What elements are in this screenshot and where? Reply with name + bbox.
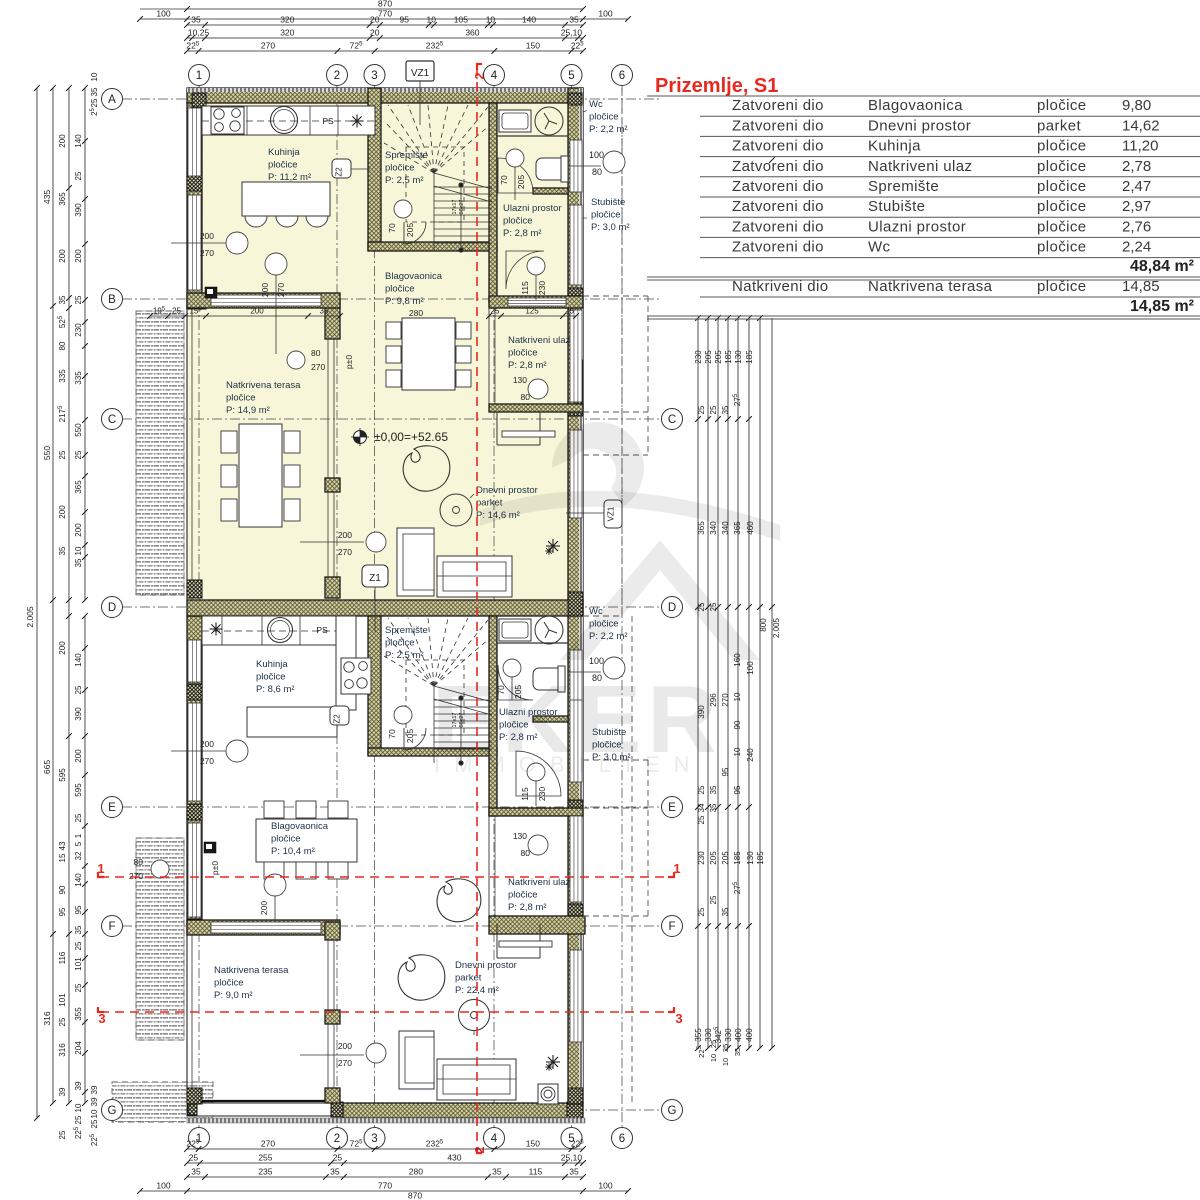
svg-text:Z2: Z2 (335, 167, 344, 177)
svg-text:100: 100 (598, 9, 612, 19)
svg-text:200: 200 (58, 505, 67, 519)
svg-text:pločice: pločice (1037, 239, 1087, 256)
svg-text:66x27: 66x27 (459, 200, 465, 215)
svg-text:32: 32 (74, 851, 83, 860)
svg-text:25: 25 (74, 813, 83, 822)
svg-text:200: 200 (338, 530, 352, 540)
svg-text:100: 100 (156, 9, 170, 19)
svg-text:pločice: pločice (1037, 218, 1087, 235)
svg-text:185: 185 (733, 851, 742, 865)
svg-text:316: 316 (42, 1011, 52, 1025)
svg-text:595: 595 (58, 768, 67, 782)
svg-text:G: G (108, 1105, 117, 1117)
svg-text:2: 2 (334, 70, 340, 82)
svg-text:25: 25 (58, 1017, 67, 1026)
svg-text:43: 43 (58, 841, 67, 850)
svg-text:25,10: 25,10 (561, 28, 583, 38)
svg-text:140: 140 (74, 653, 83, 667)
svg-text:400: 400 (745, 1028, 754, 1042)
svg-text:Zatvoreni dio: Zatvoreni dio (732, 97, 824, 114)
svg-text:5: 5 (74, 841, 83, 846)
svg-text:101: 101 (74, 957, 83, 971)
svg-text:25: 25 (709, 895, 718, 904)
svg-text:550: 550 (42, 446, 52, 460)
svg-text:100: 100 (746, 661, 755, 675)
svg-text:Zatvoreni dio: Zatvoreni dio (732, 178, 824, 195)
svg-text:2,78: 2,78 (1122, 158, 1151, 175)
svg-text:140: 140 (522, 15, 536, 25)
svg-text:390: 390 (74, 707, 83, 721)
svg-text:pločice: pločice (508, 348, 538, 359)
svg-text:130: 130 (734, 350, 743, 364)
svg-text:Z1: Z1 (369, 573, 381, 584)
svg-text:35: 35 (569, 15, 579, 25)
svg-text:280: 280 (409, 308, 423, 318)
svg-text:200: 200 (58, 134, 67, 148)
svg-text:115: 115 (520, 787, 530, 801)
svg-text:365: 365 (697, 521, 706, 535)
svg-text:10: 10 (74, 546, 83, 555)
svg-text:25: 25 (74, 685, 83, 694)
svg-text:25: 25 (172, 307, 181, 316)
svg-text:20: 20 (370, 15, 380, 25)
svg-text:3: 3 (98, 1011, 105, 1026)
svg-text:316: 316 (58, 1043, 67, 1057)
svg-text:25: 25 (74, 983, 83, 992)
svg-text:25: 25 (74, 171, 83, 180)
svg-text:C: C (668, 414, 676, 426)
svg-text:270: 270 (261, 41, 275, 51)
svg-text:235: 235 (258, 1167, 272, 1177)
svg-text:100: 100 (589, 656, 604, 666)
svg-text:PS: PS (322, 116, 334, 126)
svg-text:430: 430 (447, 1153, 461, 1163)
svg-text:pločice: pločice (1037, 198, 1087, 215)
svg-text:205: 205 (709, 851, 718, 865)
svg-text:270: 270 (261, 1139, 275, 1149)
svg-text:pločice: pločice (589, 112, 619, 123)
svg-text:25: 25 (709, 1040, 718, 1048)
svg-text:E: E (668, 802, 676, 814)
svg-text:200: 200 (250, 307, 264, 316)
svg-text:200: 200 (259, 901, 269, 915)
svg-text:34: 34 (697, 803, 706, 812)
svg-text:Wc: Wc (868, 239, 891, 256)
svg-text:10: 10 (709, 1054, 718, 1062)
svg-text:550: 550 (74, 423, 83, 437)
svg-text:Wc: Wc (589, 99, 603, 110)
svg-text:39: 39 (58, 1087, 67, 1096)
svg-text:70: 70 (499, 175, 509, 185)
svg-text:VZ1: VZ1 (411, 68, 430, 79)
svg-text:270: 270 (311, 362, 325, 372)
svg-text:pločice: pločice (1037, 138, 1087, 155)
svg-text:200: 200 (74, 523, 83, 537)
svg-text:204: 204 (74, 1041, 83, 1055)
svg-text:Natkrivena terasa: Natkrivena terasa (868, 278, 993, 295)
svg-text:4: 4 (491, 1133, 498, 1145)
svg-text:25: 25 (721, 1044, 730, 1052)
svg-text:pločice: pločice (268, 160, 298, 171)
svg-text:10: 10 (90, 72, 99, 81)
svg-text:VZ1: VZ1 (607, 506, 616, 521)
svg-text:335: 335 (58, 369, 67, 383)
svg-text:230: 230 (74, 323, 83, 337)
svg-text:80: 80 (58, 341, 67, 350)
svg-text:25: 25 (565, 307, 574, 316)
svg-text:P: 2,8 m²: P: 2,8 m² (508, 902, 547, 913)
svg-text:770: 770 (378, 1181, 392, 1191)
svg-text:25: 25 (697, 907, 706, 916)
svg-text:870: 870 (378, 0, 392, 9)
svg-text:Spremište: Spremište (385, 625, 428, 636)
svg-text:14,62: 14,62 (1122, 117, 1160, 134)
svg-text:pločice: pločice (1037, 278, 1087, 295)
svg-text:P: 2,5 m²: P: 2,5 m² (385, 650, 424, 661)
svg-text:P: 2,5 m²: P: 2,5 m² (385, 175, 424, 186)
svg-text:10: 10 (733, 692, 742, 701)
svg-text:11,20: 11,20 (1122, 138, 1158, 155)
svg-text:230: 230 (537, 281, 547, 295)
svg-text:2.005: 2.005 (25, 606, 35, 628)
svg-text:D: D (108, 602, 116, 614)
svg-text:P: 14,9 m²: P: 14,9 m² (226, 405, 270, 416)
svg-text:pločice: pločice (385, 284, 415, 295)
svg-text:105: 105 (454, 15, 468, 25)
svg-text:10: 10 (721, 1058, 730, 1066)
svg-text:pločice: pločice (508, 890, 538, 901)
svg-text:230: 230 (694, 350, 703, 364)
svg-text:pločice: pločice (271, 834, 301, 845)
svg-text:Spremište: Spremište (868, 178, 939, 195)
svg-text:C: C (108, 414, 116, 426)
svg-text:Zatvoreni dio: Zatvoreni dio (732, 218, 824, 235)
svg-text:14,85: 14,85 (1122, 278, 1160, 295)
svg-text:pločice: pločice (385, 163, 415, 174)
svg-text:25: 25 (90, 98, 99, 107)
svg-text:2,24: 2,24 (1122, 239, 1151, 256)
svg-text:P: 9,0 m²: P: 9,0 m² (214, 990, 253, 1001)
svg-text:365: 365 (74, 480, 83, 494)
svg-text:p±0: p±0 (344, 355, 354, 369)
svg-text:P: 10,4 m²: P: 10,4 m² (271, 846, 315, 857)
svg-text:25: 25 (697, 405, 706, 414)
svg-text:Zatvoreni dio: Zatvoreni dio (732, 198, 824, 215)
svg-text:Stubište: Stubište (591, 197, 625, 208)
svg-text:330: 330 (704, 1028, 713, 1042)
svg-text:Natkriveni dio: Natkriveni dio (732, 278, 828, 295)
svg-text:6: 6 (619, 1133, 625, 1145)
svg-text:150: 150 (526, 1139, 540, 1149)
svg-text:Ulazni prostor: Ulazni prostor (868, 218, 966, 235)
svg-text:101: 101 (58, 993, 67, 1007)
svg-text:15: 15 (58, 853, 67, 862)
svg-text:400: 400 (734, 1028, 743, 1042)
svg-text:4: 4 (491, 70, 498, 82)
svg-text:pločice: pločice (256, 672, 286, 683)
svg-text:B: B (108, 294, 116, 306)
svg-text:Zatvoreni dio: Zatvoreni dio (732, 117, 824, 134)
svg-text:3: 3 (675, 1011, 682, 1026)
svg-text:35: 35 (709, 803, 718, 812)
svg-text:25: 25 (491, 307, 500, 316)
svg-text:185: 185 (724, 350, 733, 364)
svg-text:D: D (668, 602, 676, 614)
svg-text:35: 35 (330, 1167, 340, 1177)
svg-text:95: 95 (58, 907, 67, 916)
svg-text:35: 35 (191, 1167, 201, 1177)
svg-text:±0,00=+52.65: ±0,00=+52.65 (374, 430, 448, 444)
svg-text:115: 115 (520, 281, 530, 295)
svg-text:48,84 m²: 48,84 m² (1130, 258, 1194, 275)
svg-text:pločice: pločice (503, 216, 533, 227)
svg-text:35: 35 (58, 295, 67, 304)
svg-text:80: 80 (521, 392, 531, 402)
svg-text:2,76: 2,76 (1122, 218, 1151, 235)
svg-text:90: 90 (58, 885, 67, 894)
svg-text:25: 25 (697, 815, 706, 824)
svg-text:25,10: 25,10 (561, 1153, 583, 1163)
svg-text:185: 185 (745, 350, 754, 364)
svg-text:35: 35 (90, 87, 99, 96)
svg-text:P: 2,2 m²: P: 2,2 m² (589, 124, 628, 135)
svg-text:2,47: 2,47 (1122, 178, 1151, 195)
svg-text:10: 10 (486, 15, 496, 25)
svg-text:35: 35 (721, 405, 730, 414)
svg-text:P: 9,8 m²: P: 9,8 m² (385, 296, 424, 307)
svg-text:205: 205 (405, 223, 415, 237)
svg-text:205: 205 (714, 350, 723, 364)
svg-text:F: F (668, 921, 675, 933)
svg-text:115: 115 (529, 1167, 543, 1177)
svg-text:80: 80 (521, 848, 531, 858)
svg-text:10: 10 (427, 15, 437, 25)
svg-text:25: 25 (709, 405, 718, 414)
svg-text:5: 5 (568, 70, 574, 82)
svg-text:Dnevni prostor: Dnevni prostor (476, 485, 538, 496)
svg-text:270: 270 (338, 547, 352, 557)
svg-text:1: 1 (196, 70, 202, 82)
svg-text:35: 35 (74, 558, 83, 567)
svg-text:2.005: 2.005 (772, 617, 781, 638)
svg-text:100: 100 (156, 1181, 170, 1191)
svg-text:Prizemlje, S1: Prizemlje, S1 (655, 75, 778, 97)
svg-text:P: 2,8 m²: P: 2,8 m² (508, 360, 547, 371)
svg-text:360: 360 (465, 28, 479, 38)
svg-text:100: 100 (598, 1181, 612, 1191)
svg-text:25: 25 (333, 1153, 343, 1163)
svg-text:270: 270 (276, 283, 286, 297)
svg-text:200: 200 (338, 1041, 352, 1051)
svg-text:39: 39 (74, 1081, 83, 1090)
svg-text:PS: PS (316, 625, 328, 635)
svg-text:parket: parket (1037, 117, 1082, 134)
svg-text:P: 11,2 m²: P: 11,2 m² (268, 172, 311, 183)
svg-text:595: 595 (74, 783, 83, 797)
svg-text:Blagovaonica: Blagovaonica (385, 271, 443, 282)
svg-text:Blagovaonica: Blagovaonica (271, 821, 329, 832)
svg-text:25: 25 (74, 1115, 83, 1124)
svg-text:435: 435 (42, 190, 52, 204)
svg-text:39: 39 (90, 1085, 99, 1094)
svg-text:35: 35 (58, 546, 67, 555)
svg-text:35: 35 (569, 1167, 579, 1177)
svg-text:25: 25 (74, 295, 83, 304)
svg-text:Natkriveni ulaz: Natkriveni ulaz (508, 877, 571, 888)
svg-text:365: 365 (58, 192, 67, 206)
svg-text:Z2: Z2 (333, 714, 342, 724)
svg-text:205: 205 (721, 851, 730, 865)
svg-text:320: 320 (280, 28, 294, 38)
svg-text:95: 95 (74, 905, 83, 914)
svg-text:IMMOBILIEN: IMMOBILIEN (434, 752, 704, 777)
svg-text:35: 35 (709, 785, 718, 794)
svg-text:270: 270 (200, 248, 214, 258)
svg-text:125: 125 (525, 307, 539, 316)
svg-text:2,97: 2,97 (1122, 198, 1151, 215)
svg-text:1: 1 (74, 833, 83, 838)
svg-text:270: 270 (129, 871, 143, 881)
svg-text:3: 3 (371, 1133, 377, 1145)
svg-text:25: 25 (90, 1119, 99, 1128)
svg-text:Stubište: Stubište (868, 198, 925, 215)
svg-text:355: 355 (694, 1028, 703, 1042)
svg-text:Zatvoreni dio: Zatvoreni dio (732, 158, 824, 175)
svg-text:Zatvoreni dio: Zatvoreni dio (732, 138, 824, 155)
svg-text:270: 270 (200, 756, 214, 766)
svg-text:20: 20 (370, 28, 380, 38)
svg-text:G: G (668, 1105, 677, 1117)
svg-text:200: 200 (74, 249, 83, 263)
svg-text:130: 130 (513, 375, 527, 385)
svg-text:140: 140 (74, 873, 83, 887)
svg-text:330: 330 (724, 1028, 733, 1042)
svg-text:35: 35 (492, 1167, 502, 1177)
svg-text:F: F (108, 921, 115, 933)
svg-text:25: 25 (74, 941, 83, 950)
svg-text:Blagovaonica: Blagovaonica (868, 97, 963, 114)
svg-text:390: 390 (74, 203, 83, 217)
svg-text:355: 355 (74, 1007, 83, 1021)
svg-text:116: 116 (58, 951, 67, 964)
svg-text:35: 35 (320, 307, 329, 316)
svg-text:130: 130 (746, 851, 755, 865)
svg-text:25: 25 (58, 450, 67, 459)
svg-text:pločice: pločice (1037, 158, 1087, 175)
svg-text:255: 255 (258, 1153, 272, 1163)
svg-text:Kuhinja: Kuhinja (868, 138, 921, 155)
svg-text:Dnevni prostor: Dnevni prostor (455, 960, 517, 971)
svg-text:100: 100 (589, 150, 604, 160)
svg-text:150: 150 (526, 41, 540, 51)
svg-text:70: 70 (387, 223, 397, 233)
svg-text:Zatvoreni dio: Zatvoreni dio (732, 239, 824, 256)
svg-text:230: 230 (537, 787, 547, 801)
svg-text:140: 140 (74, 134, 83, 148)
svg-text:3: 3 (371, 70, 377, 82)
svg-text:P: 2,8 m²: P: 2,8 m² (503, 228, 542, 239)
svg-text:9,80: 9,80 (1122, 97, 1151, 114)
svg-text:pločice: pločice (1037, 97, 1087, 114)
svg-text:pločice: pločice (1037, 178, 1087, 195)
svg-text:230: 230 (697, 851, 706, 865)
svg-text:270: 270 (338, 1058, 352, 1068)
svg-text:340: 340 (709, 521, 718, 535)
svg-text:25: 25 (74, 450, 83, 459)
svg-text:25: 25 (58, 1130, 67, 1139)
svg-text:Spremište: Spremište (385, 150, 428, 161)
svg-text:35: 35 (74, 925, 83, 934)
svg-text:280: 280 (409, 1167, 423, 1177)
svg-text:870: 870 (408, 1191, 422, 1200)
svg-text:Kuhinja: Kuhinja (256, 659, 288, 670)
svg-text:6: 6 (619, 70, 625, 82)
svg-text:240: 240 (746, 748, 755, 762)
svg-text:Natkrivena terasa: Natkrivena terasa (226, 380, 301, 391)
svg-text:25: 25 (189, 1153, 199, 1163)
svg-text:35: 35 (191, 15, 201, 25)
svg-text:10: 10 (733, 747, 742, 756)
svg-text:200: 200 (260, 283, 270, 297)
svg-text:200: 200 (58, 641, 67, 655)
svg-text:P: 8,6 m²: P: 8,6 m² (256, 684, 295, 695)
svg-text:80: 80 (134, 857, 144, 867)
svg-text:35: 35 (733, 1048, 742, 1056)
svg-text:320: 320 (280, 15, 294, 25)
svg-text:70: 70 (387, 729, 397, 739)
svg-text:2: 2 (334, 1133, 340, 1145)
svg-text:A: A (108, 94, 116, 106)
svg-text:800: 800 (759, 618, 768, 632)
svg-text:10,25: 10,25 (188, 28, 210, 38)
svg-text:200: 200 (58, 249, 67, 263)
svg-text:pločice: pločice (226, 393, 256, 404)
svg-text:p±0: p±0 (210, 861, 220, 875)
svg-text:17x17: 17x17 (452, 200, 458, 215)
svg-text:90: 90 (733, 720, 742, 729)
svg-text:Natkrivena terasa: Natkrivena terasa (214, 965, 289, 976)
svg-text:205: 205 (405, 729, 415, 743)
svg-text:200: 200 (200, 231, 214, 241)
svg-text:665: 665 (42, 760, 52, 774)
svg-text:pločice: pločice (214, 978, 244, 989)
svg-text:95: 95 (400, 15, 410, 25)
svg-text:25: 25 (697, 785, 706, 794)
svg-text:335: 335 (74, 371, 83, 385)
svg-text:39: 39 (90, 1097, 99, 1106)
svg-text:E: E (108, 802, 116, 814)
svg-text:80: 80 (592, 167, 602, 177)
svg-text:Dnevni prostor: Dnevni prostor (868, 117, 971, 134)
svg-text:185: 185 (756, 851, 765, 865)
svg-text:pločice: pločice (591, 210, 621, 221)
svg-text:Ulazni prostor: Ulazni prostor (503, 203, 562, 214)
svg-text:Kuhinja: Kuhinja (268, 147, 300, 158)
svg-text:200: 200 (74, 749, 83, 763)
svg-text:770: 770 (378, 9, 392, 19)
svg-text:10: 10 (74, 1103, 83, 1112)
svg-text:205: 205 (516, 175, 526, 189)
svg-text:14,85 m²: 14,85 m² (1130, 298, 1194, 315)
svg-text:35: 35 (721, 907, 730, 916)
svg-text:95: 95 (733, 785, 742, 794)
svg-text:130: 130 (513, 831, 527, 841)
svg-text:205: 205 (704, 350, 713, 364)
svg-text:Natkriveni ulaz: Natkriveni ulaz (868, 158, 972, 175)
svg-text:P: 3,0 m²: P: 3,0 m² (591, 222, 630, 233)
svg-text:200: 200 (200, 739, 214, 749)
svg-text:80: 80 (311, 348, 321, 358)
